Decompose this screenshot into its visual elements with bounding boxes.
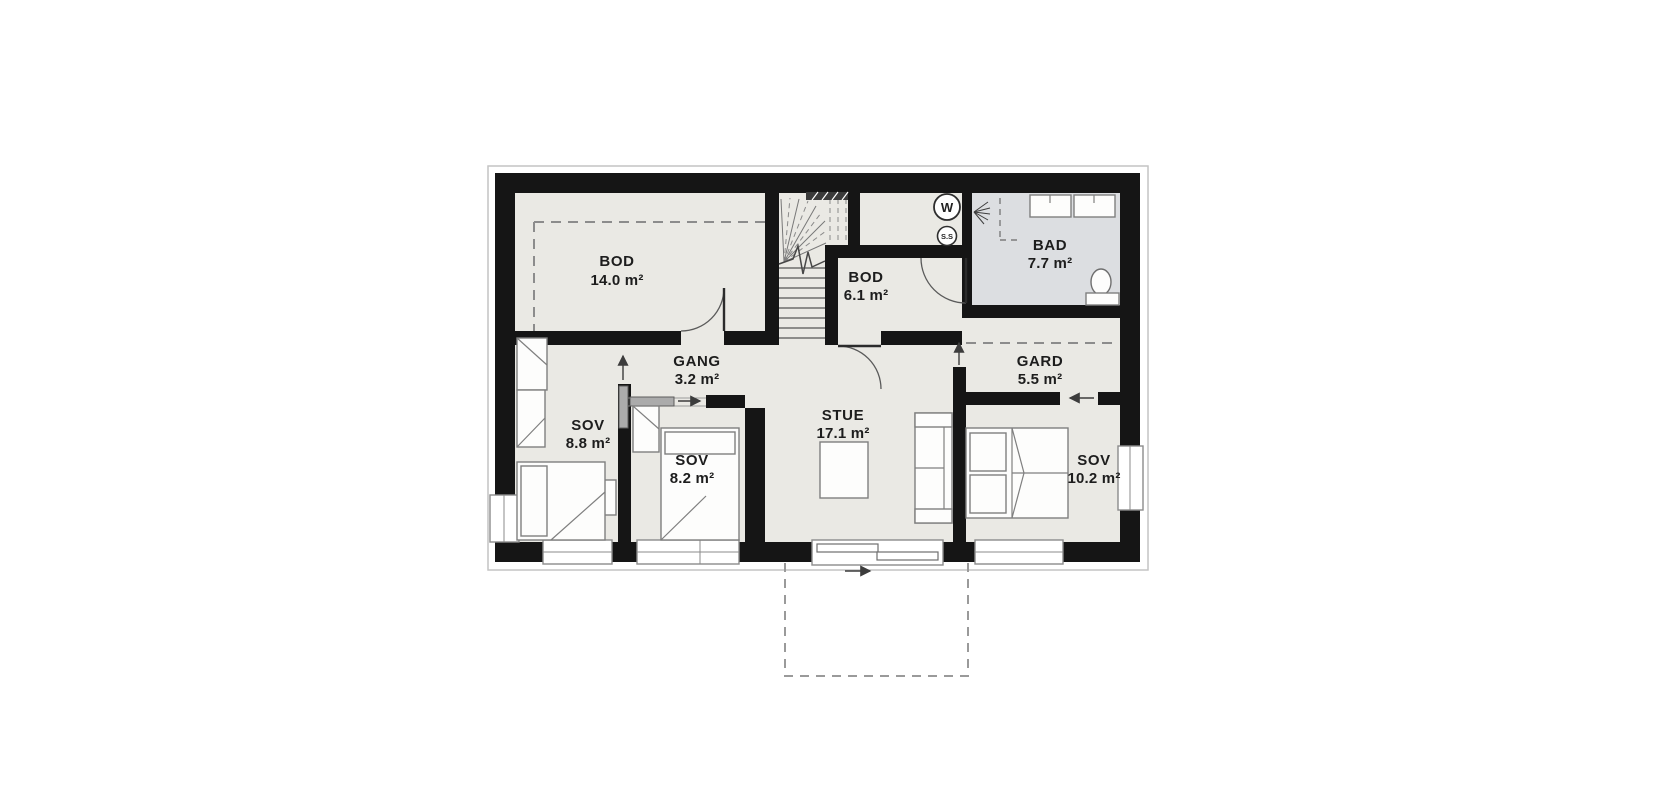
terrace-outline xyxy=(785,563,968,676)
sov88-pillow xyxy=(521,466,547,536)
room-area-stue: 17.1 m² xyxy=(816,425,869,442)
wall-gard-south xyxy=(962,392,1060,405)
bad-toilet-tank xyxy=(1086,293,1119,305)
wall-sov82-east xyxy=(745,408,765,542)
wall-top xyxy=(495,173,1140,193)
sov82-door-panel xyxy=(630,397,674,406)
room-label-bad: BAD xyxy=(1033,237,1067,254)
sov82-wardrobe xyxy=(633,406,659,452)
room-area-sov82: 8.2 m² xyxy=(670,470,715,487)
room-area-bod61: 6.1 m² xyxy=(844,287,889,304)
room-area-bad: 7.7 m² xyxy=(1028,255,1073,272)
room-label-gang: GANG xyxy=(673,353,720,370)
wall-hall-north-c xyxy=(881,331,962,345)
room-label-sov82: SOV xyxy=(675,452,708,469)
wall-bod61-north xyxy=(825,245,962,258)
wall-hall-north-b xyxy=(724,331,779,345)
room-label-stue: STUE xyxy=(822,407,864,424)
room-label-sov102: SOV xyxy=(1077,452,1110,469)
room-label-bod61: BOD xyxy=(848,269,883,286)
sov88-wardrobe-2 xyxy=(517,390,545,447)
room-label-gard: GARD xyxy=(1017,353,1064,370)
sov102-pillow-1 xyxy=(970,433,1006,471)
room-area-gang: 3.2 m² xyxy=(675,371,720,388)
room-area-sov102: 10.2 m² xyxy=(1067,470,1120,487)
room-area-sov88: 8.8 m² xyxy=(566,435,611,452)
stue-coffee-table xyxy=(820,442,868,498)
sov82-pillow xyxy=(665,432,735,454)
room-area-gard: 5.5 m² xyxy=(1018,371,1063,388)
sov88-wardrobe-1 xyxy=(517,338,547,390)
ss-label: S.S xyxy=(941,232,953,241)
room-label-sov88: SOV xyxy=(571,417,604,434)
stue-sofa-armrest-bottom xyxy=(915,509,952,523)
wall-stair-east xyxy=(825,258,838,345)
room-area-bod14: 14.0 m² xyxy=(590,272,643,289)
floor-plan-drawing: W S.S BOD 14.0 m² BOD 6.1 m² BAD 7.7 m² … xyxy=(0,0,1670,800)
sov102-pillow-2 xyxy=(970,475,1006,513)
water-heater-label: W xyxy=(941,200,954,215)
bad-toilet-bowl xyxy=(1091,269,1111,295)
wall-sov82-north xyxy=(706,395,745,408)
stue-sofa-armrest-top xyxy=(915,413,952,427)
floor-plan-page: W S.S BOD 14.0 m² BOD 6.1 m² BAD 7.7 m² … xyxy=(0,0,1670,800)
wall-gard-south-stub xyxy=(1098,392,1120,405)
terrace-door-panel-1 xyxy=(817,544,878,552)
terrace-door-panel-2 xyxy=(877,552,938,560)
wall-bad-south xyxy=(962,305,1140,318)
wall-niche-west xyxy=(848,193,860,245)
wall-bod14-east xyxy=(765,193,779,345)
room-label-bod14: BOD xyxy=(599,253,634,270)
sov88-door-panel xyxy=(619,386,628,428)
